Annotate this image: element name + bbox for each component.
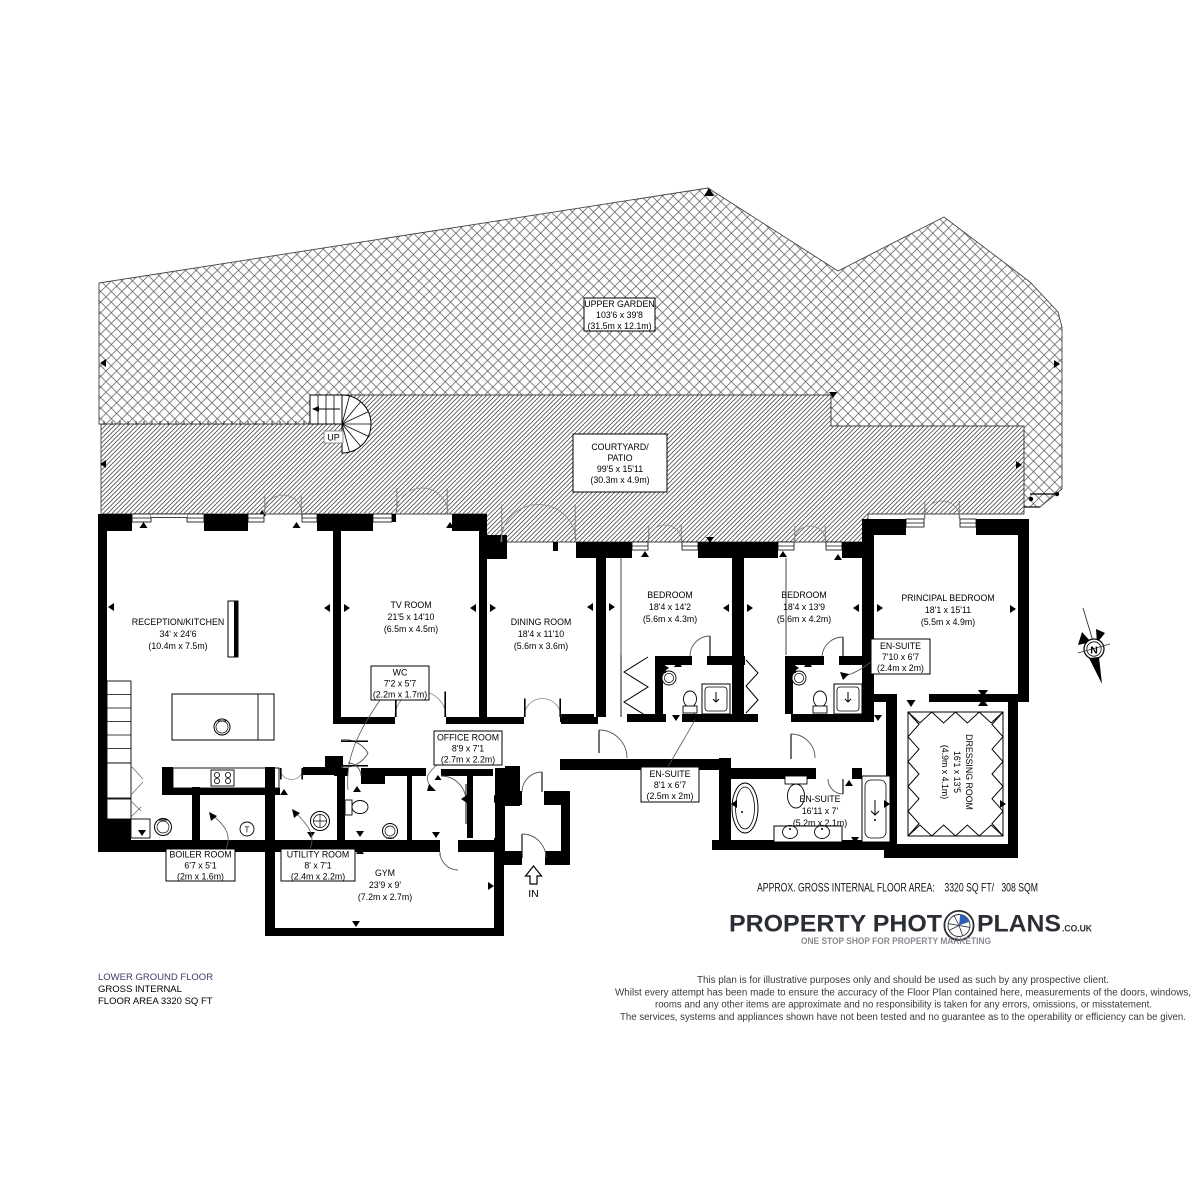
svg-text:PATIO: PATIO — [607, 453, 632, 463]
svg-text:EN-SUITE: EN-SUITE — [880, 641, 921, 651]
svg-text:8' x 7'1: 8' x 7'1 — [304, 861, 331, 871]
svg-text:(30.3m x 4.9m): (30.3m x 4.9m) — [590, 475, 649, 485]
svg-text:103'6 x 39'8: 103'6 x 39'8 — [596, 310, 643, 320]
svg-text:99'5 x 15'11: 99'5 x 15'11 — [597, 464, 643, 474]
svg-text:UPPER GARDEN: UPPER GARDEN — [584, 299, 654, 309]
svg-text:16'1 x 13'5: 16'1 x 13'5 — [952, 751, 962, 793]
svg-text:DRESSING ROOM: DRESSING ROOM — [964, 734, 974, 810]
svg-text:18'4 x 11'10: 18'4 x 11'10 — [518, 629, 564, 639]
svg-text:(10.4m x 7.5m): (10.4m x 7.5m) — [148, 641, 207, 651]
svg-text:(2.7m x 2.2m): (2.7m x 2.2m) — [441, 755, 495, 765]
svg-text:This plan is for illustrative: This plan is for illustrative purposes o… — [697, 975, 1109, 986]
svg-text:8'1 x 6'7: 8'1 x 6'7 — [654, 780, 686, 790]
svg-text:(5.2m x 2.1m): (5.2m x 2.1m) — [793, 818, 847, 828]
svg-text:GYM: GYM — [375, 868, 395, 878]
svg-text:(2.4m x 2m): (2.4m x 2m) — [877, 663, 924, 673]
svg-text:FLOOR AREA 3320 SQ FT: FLOOR AREA 3320 SQ FT — [98, 996, 213, 1007]
svg-text:34' x 24'6: 34' x 24'6 — [159, 629, 196, 639]
svg-text:OFFICE ROOM: OFFICE ROOM — [437, 733, 499, 743]
svg-text:RECEPTION/KITCHEN: RECEPTION/KITCHEN — [132, 617, 224, 627]
svg-text:23'9 x 9': 23'9 x 9' — [369, 880, 402, 890]
svg-text:WC: WC — [393, 668, 408, 678]
svg-text:(5.6m x 4.3m): (5.6m x 4.3m) — [643, 614, 697, 624]
svg-text:7'2 x 5'7: 7'2 x 5'7 — [384, 679, 416, 689]
svg-text:BOILER ROOM: BOILER ROOM — [169, 850, 231, 860]
svg-text:(5.6m x 4.2m): (5.6m x 4.2m) — [777, 614, 831, 624]
svg-text:EN-SUITE: EN-SUITE — [799, 794, 840, 804]
svg-text:TV ROOM: TV ROOM — [390, 600, 431, 610]
svg-text:The services, systems and appl: The services, systems and appliances sho… — [620, 1012, 1186, 1023]
svg-text:PROPERTY PHOT: PROPERTY PHOT — [729, 911, 942, 938]
svg-text:UTILITY ROOM: UTILITY ROOM — [287, 850, 349, 860]
svg-text:BEDROOM: BEDROOM — [647, 590, 692, 600]
svg-text:EN-SUITE: EN-SUITE — [649, 769, 690, 779]
svg-text:IN: IN — [528, 888, 539, 900]
svg-text:18'4 x 14'2: 18'4 x 14'2 — [649, 602, 691, 612]
svg-text:8'9 x 7'1: 8'9 x 7'1 — [452, 744, 484, 754]
svg-text:N: N — [1090, 645, 1098, 657]
svg-text:GROSS INTERNAL: GROSS INTERNAL — [98, 984, 182, 995]
svg-text:.CO.UK: .CO.UK — [1062, 924, 1092, 935]
svg-text:6'7 x 5'1: 6'7 x 5'1 — [184, 861, 216, 871]
svg-text:7'10 x 6'7: 7'10 x 6'7 — [882, 652, 919, 662]
svg-text:(2.4m x 2.2m): (2.4m x 2.2m) — [291, 872, 345, 882]
svg-text:PRINCIPAL BEDROOM: PRINCIPAL BEDROOM — [901, 593, 994, 603]
svg-text:PLANS: PLANS — [977, 911, 1061, 938]
svg-text:(31.5m x 12.1m): (31.5m x 12.1m) — [587, 321, 651, 331]
svg-text:(6.5m x 4.5m): (6.5m x 4.5m) — [384, 624, 438, 634]
svg-text:Whilst every attempt has been: Whilst every attempt has been made to en… — [615, 987, 1191, 998]
svg-text:APPROX. GROSS INTERNAL FLOOR A: APPROX. GROSS INTERNAL FLOOR AREA: 3320 … — [757, 881, 1038, 895]
svg-text:ONE STOP SHOP FOR PROPERTY MAR: ONE STOP SHOP FOR PROPERTY MARKETING — [801, 936, 991, 946]
svg-text:COURTYARD/: COURTYARD/ — [591, 442, 649, 452]
svg-text:rooms and any other items are: rooms and any other items are approximat… — [655, 1000, 1152, 1011]
svg-text:18'1 x 15'11: 18'1 x 15'11 — [925, 605, 971, 615]
svg-text:(2.5m x 2m): (2.5m x 2m) — [647, 791, 694, 801]
svg-text:(2.2m x 1.7m): (2.2m x 1.7m) — [373, 690, 427, 700]
svg-text:(4.9m x 4.1m): (4.9m x 4.1m) — [940, 745, 950, 799]
svg-text:16'11 x 7': 16'11 x 7' — [802, 806, 839, 816]
svg-text:T: T — [245, 825, 250, 834]
svg-text:(2m x 1.6m): (2m x 1.6m) — [177, 872, 224, 882]
svg-text:(5.6m x 3.6m): (5.6m x 3.6m) — [514, 641, 568, 651]
svg-text:UP: UP — [327, 433, 340, 443]
svg-text:(7.2m x 2.7m): (7.2m x 2.7m) — [358, 892, 412, 902]
svg-text:DINING ROOM: DINING ROOM — [511, 617, 572, 627]
svg-text:BEDROOM: BEDROOM — [781, 590, 826, 600]
svg-text:LOWER GROUND FLOOR: LOWER GROUND FLOOR — [98, 972, 213, 983]
svg-text:(5.5m x 4.9m): (5.5m x 4.9m) — [921, 617, 975, 627]
svg-text:18'4 x 13'9: 18'4 x 13'9 — [783, 602, 825, 612]
svg-text:21'5 x 14'10: 21'5 x 14'10 — [388, 612, 435, 622]
